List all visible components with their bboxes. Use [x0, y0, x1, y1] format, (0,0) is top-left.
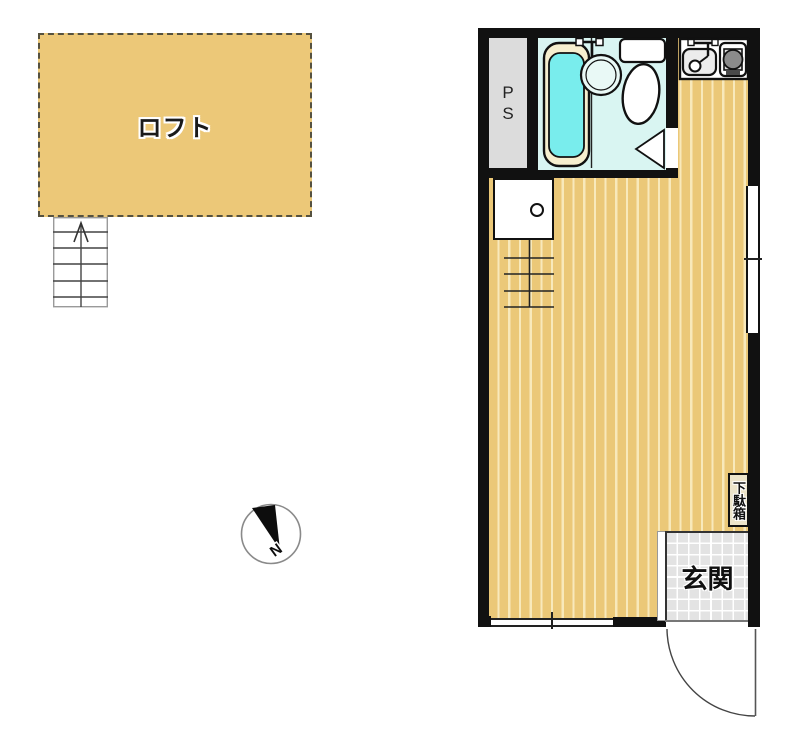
loft-area: ロフト — [38, 33, 312, 217]
washing-machine-pan — [493, 178, 554, 240]
pipe-space-label-p: P — [502, 82, 513, 103]
pipe-space-label-s: S — [502, 103, 513, 124]
shoe-cabinet: 下駄箱 — [728, 473, 749, 527]
bathroom-fixtures — [538, 38, 668, 170]
window-bottom-tick — [551, 612, 553, 629]
loft-label: ロフト — [138, 108, 213, 143]
burner-icon — [724, 50, 743, 69]
door-swing-arc — [667, 629, 755, 716]
washbasin — [581, 55, 621, 95]
entrance-label: 玄関 — [681, 559, 733, 596]
toilet — [619, 39, 665, 126]
bathtub — [544, 43, 589, 166]
drain-circle-icon — [530, 203, 544, 217]
entrance-area: 玄関 — [665, 531, 748, 621]
room-stairs-steps — [504, 240, 554, 307]
bathroom-door-icon — [636, 130, 664, 168]
loft-stairs-steps — [53, 218, 108, 307]
kitchen-counter — [679, 38, 749, 80]
window-right-tick — [744, 258, 762, 260]
entrance-door — [645, 615, 765, 723]
shoe-cabinet-label: 下駄箱 — [732, 481, 745, 520]
stove — [720, 43, 746, 76]
wall-right-lower — [748, 333, 760, 627]
compass: N — [238, 502, 308, 570]
room-stairs — [504, 240, 554, 308]
wall-ps-bathroom — [527, 38, 538, 168]
loft-stairs — [53, 217, 108, 308]
floor-plan-page: { "loft": { "label": "ロフト" }, "pipe_spac… — [0, 0, 800, 750]
wall-bottom-left — [478, 616, 491, 627]
wall-left — [478, 28, 489, 627]
wall-top — [478, 28, 760, 38]
wall-right-upper — [748, 28, 760, 186]
pipe-space: P S — [489, 38, 527, 168]
